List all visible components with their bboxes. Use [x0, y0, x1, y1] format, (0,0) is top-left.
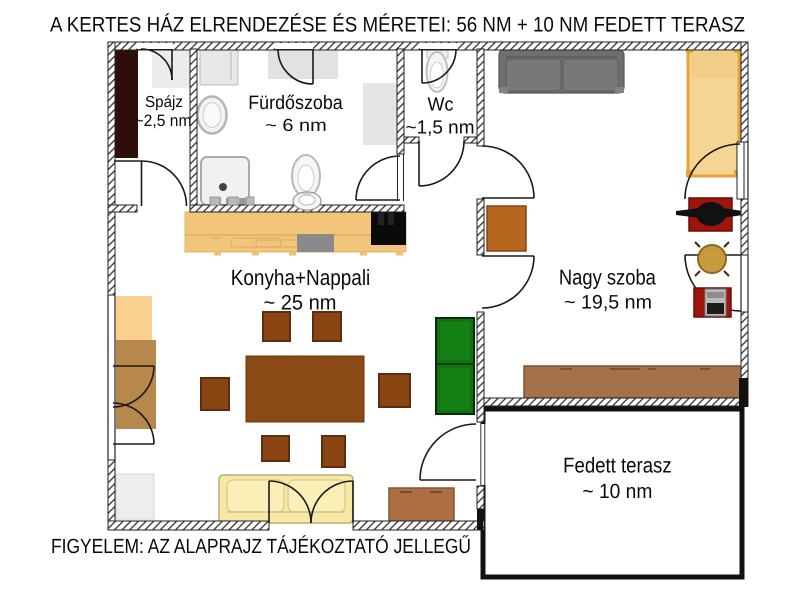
- svg-text:FIGYELEM: AZ ALAPRAJZ TÁJÉKOZT: FIGYELEM: AZ ALAPRAJZ TÁJÉKOZTATÓ JELLEG…: [51, 535, 471, 558]
- svg-text:Nagy szoba: Nagy szoba: [559, 266, 656, 290]
- svg-text:~2,5 nm: ~2,5 nm: [135, 112, 192, 130]
- svg-text:~ 19,5 nm: ~ 19,5 nm: [564, 292, 652, 314]
- svg-text:A KERTES HÁZ ELRENDEZÉSE ÉS MÉ: A KERTES HÁZ ELRENDEZÉSE ÉS MÉRETEI: 56 …: [50, 13, 745, 37]
- svg-text:~ 6 nm: ~ 6 nm: [265, 115, 327, 135]
- svg-text:Wc: Wc: [428, 95, 454, 116]
- svg-text:Fürdőszoba: Fürdőszoba: [248, 92, 343, 114]
- svg-text:~ 25 nm: ~ 25 nm: [264, 292, 337, 315]
- svg-text:Spájz: Spájz: [145, 94, 183, 111]
- svg-text:~1,5 nm: ~1,5 nm: [406, 118, 475, 139]
- svg-text:Fedett terasz: Fedett terasz: [563, 454, 672, 478]
- svg-text:~ 10 nm: ~ 10 nm: [582, 480, 652, 503]
- svg-text:Konyha+Nappali: Konyha+Nappali: [231, 265, 371, 290]
